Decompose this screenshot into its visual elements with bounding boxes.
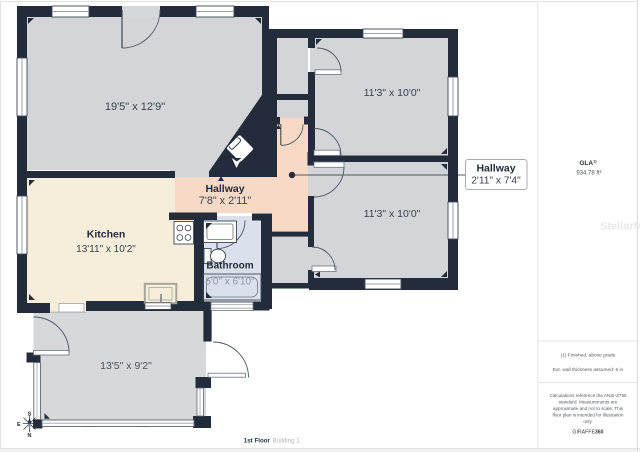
svg-text:floor plan is intended for ill: floor plan is intended for illustration [553, 413, 624, 418]
svg-text:5'0" x 6'10": 5'0" x 6'10" [205, 277, 255, 288]
svg-text:Ext. wall thickness assumed: 6: Ext. wall thickness assumed: 6 in [553, 367, 624, 373]
svg-text:1st Floor: 1st Floor [244, 438, 271, 445]
svg-text:Hallway: Hallway [205, 183, 244, 195]
svg-text:Hallway: Hallway [476, 163, 515, 175]
svg-text:StellarMLS: StellarMLS [600, 221, 640, 233]
svg-text:11'3" x 10'0": 11'3" x 10'0" [364, 208, 421, 220]
svg-text:Calculations reference the ANS: Calculations reference the ANSI-Z765 [549, 393, 627, 398]
svg-text:only.: only. [583, 419, 592, 424]
svg-text:Building 1: Building 1 [273, 438, 301, 445]
svg-text:standard. Measurements are: standard. Measurements are [559, 400, 618, 405]
svg-text:13'5" x 9'2": 13'5" x 9'2" [100, 360, 152, 372]
svg-text:Kitchen: Kitchen [87, 229, 126, 241]
svg-text:(1) Finished, above grade: (1) Finished, above grade [561, 353, 616, 359]
svg-text:19'5" x 12'9": 19'5" x 12'9" [105, 101, 165, 113]
svg-text:934.78 ft²: 934.78 ft² [576, 171, 601, 177]
svg-text:Bathroom: Bathroom [206, 261, 253, 272]
svg-text:13'11" x 10'2": 13'11" x 10'2" [76, 244, 136, 255]
svg-text:E: E [17, 422, 21, 428]
svg-text:N: N [28, 433, 32, 439]
svg-text:GIRAFFE360: GIRAFFE360 [572, 430, 603, 436]
svg-text:11'3" x 10'0": 11'3" x 10'0" [364, 87, 421, 99]
svg-text:2'11" x 7'4": 2'11" x 7'4" [471, 176, 521, 187]
svg-text:S: S [28, 412, 32, 418]
svg-text:approximate and not to scale.: approximate and not to scale. This [553, 406, 624, 411]
svg-text:7'8" x 2'11": 7'8" x 2'11" [199, 195, 252, 207]
